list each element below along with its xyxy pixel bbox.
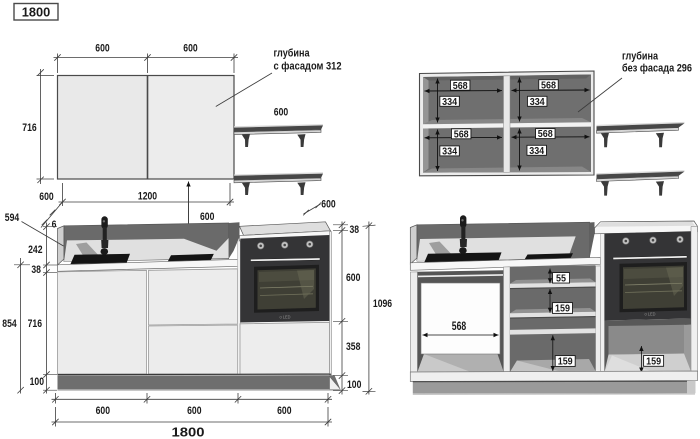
svg-text:600: 600 <box>183 43 197 55</box>
svg-text:568: 568 <box>452 321 467 333</box>
svg-text:1800: 1800 <box>22 5 51 20</box>
svg-text:716: 716 <box>22 122 36 134</box>
svg-text:600: 600 <box>346 272 360 284</box>
svg-text:без фасада 296: без фасада 296 <box>622 63 692 75</box>
svg-text:594: 594 <box>5 212 20 224</box>
svg-text:568: 568 <box>454 129 469 140</box>
svg-text:глубина: глубина <box>274 48 311 60</box>
svg-text:100: 100 <box>30 376 44 388</box>
svg-text:глубина: глубина <box>622 51 659 63</box>
svg-text:600: 600 <box>321 199 335 211</box>
svg-text:716: 716 <box>28 318 42 330</box>
svg-text:с фасадом 312: с фасадом 312 <box>274 61 342 73</box>
svg-text:334: 334 <box>442 147 457 158</box>
svg-text:600: 600 <box>200 211 214 223</box>
svg-text:854: 854 <box>2 318 17 330</box>
svg-text:242: 242 <box>28 244 42 256</box>
svg-text:600: 600 <box>277 405 291 417</box>
svg-text:600: 600 <box>95 43 109 55</box>
svg-text:38: 38 <box>350 224 360 236</box>
svg-text:159: 159 <box>558 357 573 368</box>
svg-text:334: 334 <box>530 97 545 108</box>
svg-text:600: 600 <box>187 405 201 417</box>
svg-text:o LED: o LED <box>645 312 657 317</box>
svg-text:38: 38 <box>31 264 41 276</box>
svg-text:o LED: o LED <box>280 314 292 319</box>
svg-text:568: 568 <box>453 81 468 92</box>
svg-text:334: 334 <box>529 146 544 157</box>
svg-text:1200: 1200 <box>138 191 157 203</box>
svg-text:1800: 1800 <box>172 425 205 439</box>
svg-text:159: 159 <box>555 304 570 315</box>
svg-text:600: 600 <box>274 107 288 119</box>
svg-text:600: 600 <box>96 405 110 417</box>
svg-text:6: 6 <box>52 220 57 231</box>
svg-text:600: 600 <box>39 191 53 203</box>
svg-text:100: 100 <box>347 379 361 391</box>
svg-text:55: 55 <box>556 273 566 284</box>
svg-text:568: 568 <box>538 129 553 140</box>
svg-text:568: 568 <box>541 80 556 91</box>
svg-text:159: 159 <box>646 357 661 368</box>
svg-text:1096: 1096 <box>373 298 392 310</box>
svg-text:334: 334 <box>442 97 457 108</box>
svg-text:358: 358 <box>346 341 360 353</box>
